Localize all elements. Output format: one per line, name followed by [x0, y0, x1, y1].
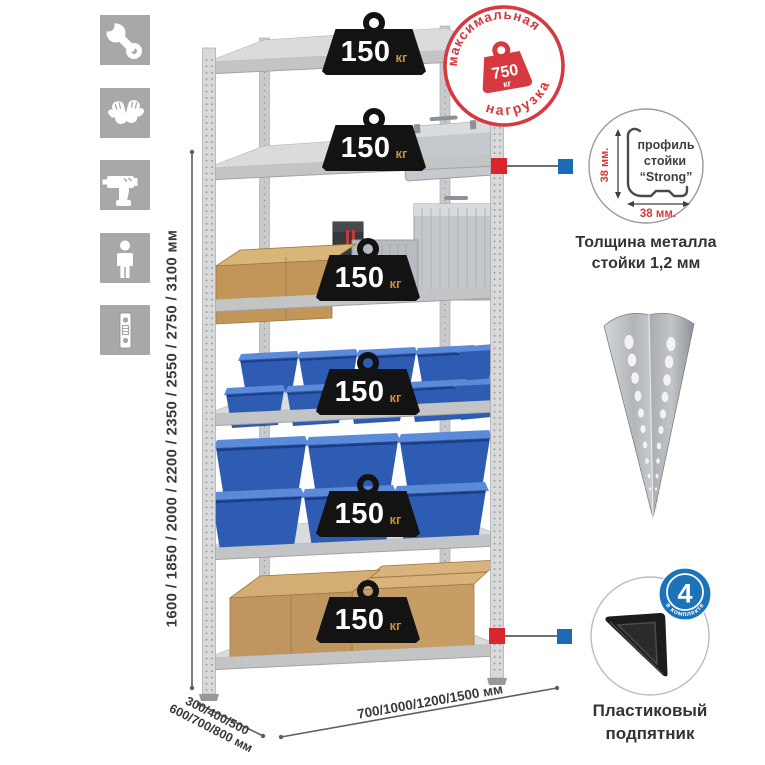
load-value: 150 [335, 498, 385, 531]
load-unit: кг [395, 50, 407, 65]
load-value: 150 [335, 604, 385, 637]
profile-dim-vertical: 38 мм. [599, 148, 611, 183]
callout-profile [491, 158, 573, 174]
blue-marker-top [558, 159, 573, 174]
load-value: 150 [341, 36, 391, 69]
metal-case-large [414, 198, 498, 300]
foot-caption-line2: подпятник [561, 723, 739, 746]
load-badge-shelf-4: 150 кг [316, 352, 420, 415]
load-value: 150 [341, 132, 391, 165]
weight-icon: 150 кг [316, 255, 420, 301]
callout-foot [489, 628, 572, 644]
weight-icon: 150 кг [322, 125, 426, 171]
profile-dim-horizontal: 38 мм. [640, 208, 676, 220]
blue-marker-bottom [557, 629, 572, 644]
weight-icon: 150 кг [316, 597, 420, 643]
load-value: 150 [335, 376, 385, 409]
load-unit: кг [389, 512, 401, 527]
load-badge-shelf-6: 150 кг [316, 580, 420, 643]
load-badge-shelf-5: 150 кг [316, 474, 420, 537]
load-unit: кг [395, 146, 407, 161]
profile-label-1: профиль [637, 138, 694, 152]
red-marker-top [491, 158, 507, 174]
post-profile-detail: 38 мм. 38 мм. профиль стойки “Strong” [587, 107, 705, 225]
weight-icon: 150 кг [316, 369, 420, 415]
profile-caption-line1: Толщина металла [561, 233, 731, 254]
load-badge-shelf-1: 150 кг [322, 12, 426, 75]
load-badge-shelf-3: 150 кг [316, 238, 420, 301]
load-unit: кг [389, 276, 401, 291]
load-unit: кг [389, 618, 401, 633]
corner-post-art [604, 313, 694, 518]
load-badge-shelf-2: 150 кг [322, 108, 426, 171]
qty-value: 4 [677, 579, 692, 609]
foot-caption: Пластиковый подпятник [561, 700, 739, 746]
load-unit: кг [389, 390, 401, 405]
red-marker-bottom [489, 628, 505, 644]
load-value: 150 [335, 262, 385, 295]
weight-icon: 150 кг [322, 29, 426, 75]
profile-label-3: “Strong” [640, 170, 693, 184]
profile-label-2: стойки [644, 154, 686, 168]
weight-icon: 150 кг [316, 491, 420, 537]
foot-caption-line1: Пластиковый [561, 700, 739, 723]
height-dimension-label: 1600 / 1850 / 2000 / 2200 / 2350 / 2550 … [164, 169, 181, 689]
product-infographic: 1600 / 1850 / 2000 / 2200 / 2350 / 2550 … [0, 0, 765, 765]
profile-caption-line2: стойки 1,2 мм [561, 254, 731, 275]
profile-caption: Толщина металла стойки 1,2 мм [561, 233, 731, 275]
qty-badge: 4 в комплекте [657, 566, 713, 622]
